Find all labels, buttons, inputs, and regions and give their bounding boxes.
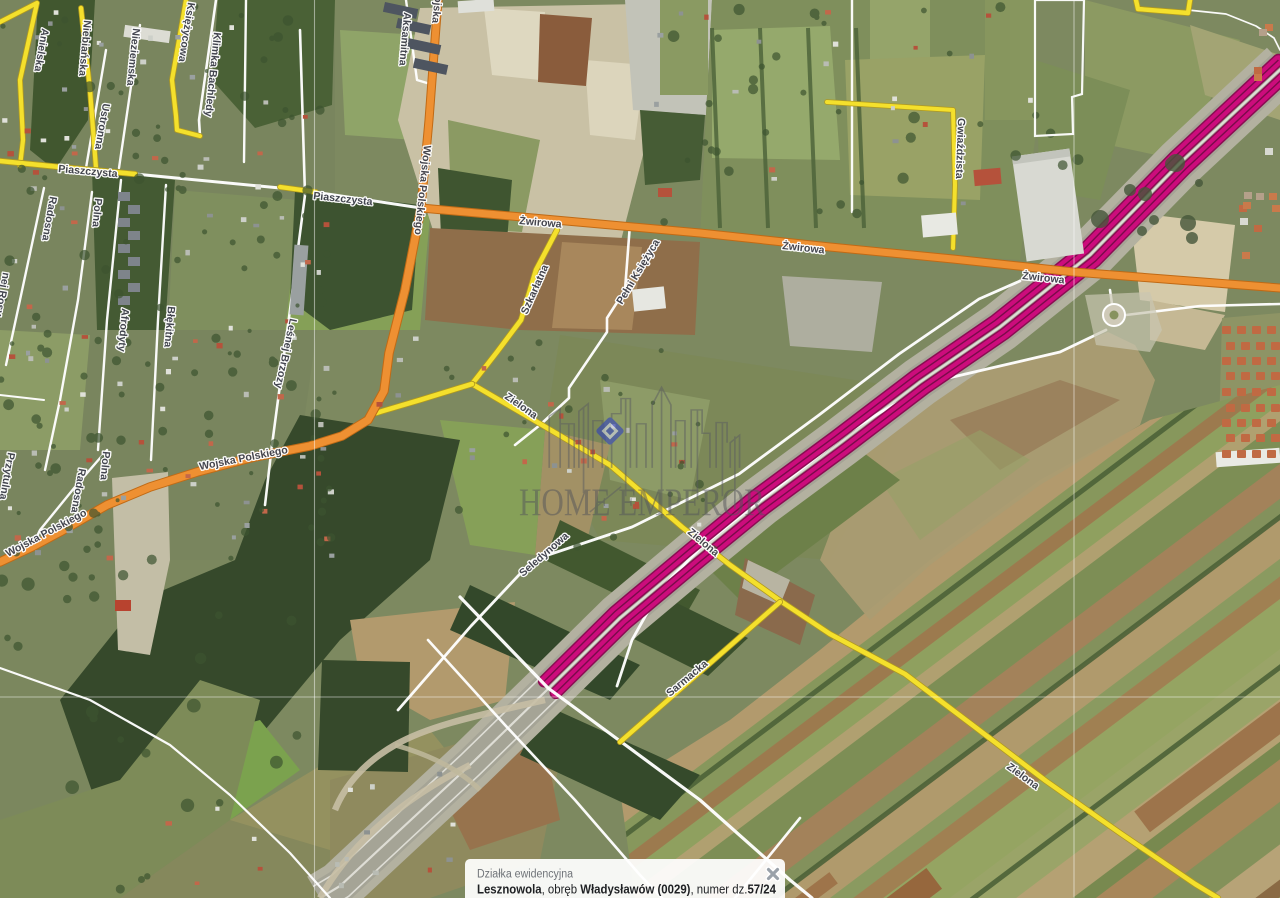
svg-text:Polna: Polna xyxy=(89,198,103,228)
svg-text:Polna: Polna xyxy=(97,451,111,481)
svg-text:Gwiaździsta: Gwiaździsta xyxy=(953,118,967,179)
svg-text:Lesznowola, obręb Władysławów: Lesznowola, obręb Władysławów (0029), nu… xyxy=(477,882,777,897)
svg-text:HOME EMPEROR: HOME EMPEROR xyxy=(519,481,765,524)
svg-text:Działka ewidencyjna: Działka ewidencyjna xyxy=(477,869,574,881)
